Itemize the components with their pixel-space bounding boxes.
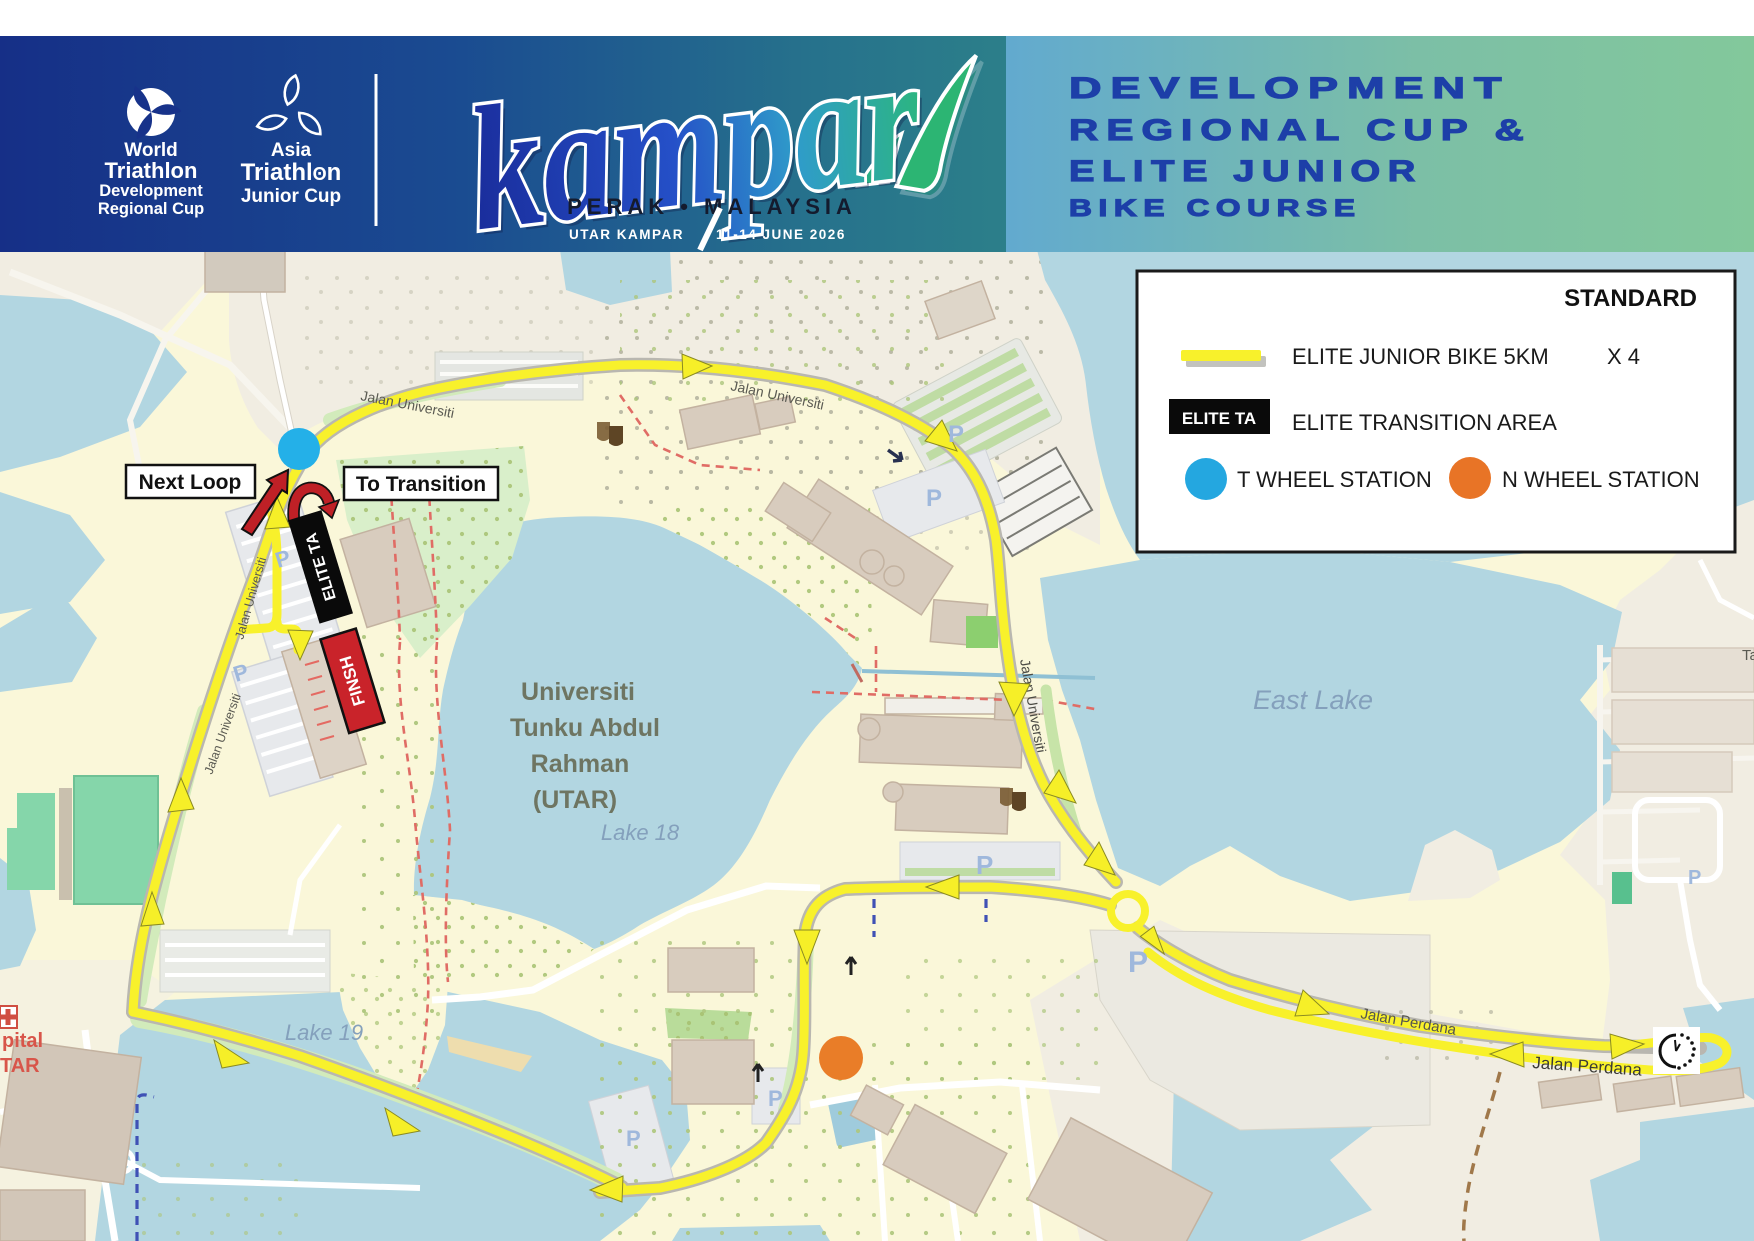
svg-text:X 4: X 4 (1607, 344, 1640, 369)
svg-text:ELITE TA: ELITE TA (1182, 409, 1256, 428)
svg-text:REGIONAL CUP &: REGIONAL CUP & (1069, 113, 1532, 147)
svg-text:ELITE JUNIOR: ELITE JUNIOR (1069, 155, 1423, 188)
svg-text:pital: pital (2, 1030, 43, 1052)
svg-text:N WHEEL STATION: N WHEEL STATION (1502, 467, 1700, 492)
svg-text:Asia: Asia (271, 140, 312, 161)
svg-text:Ta: Ta (1742, 647, 1754, 664)
svg-text:Tunku Abdul: Tunku Abdul (510, 714, 660, 742)
svg-text:UTAR KAMPAR: UTAR KAMPAR (569, 227, 684, 242)
svg-text:ELITE TRANSITION AREA: ELITE TRANSITION AREA (1292, 410, 1557, 435)
svg-text:11-14 JUNE 2026: 11-14 JUNE 2026 (716, 227, 846, 242)
svg-text:P: P (948, 421, 964, 448)
svg-text:P: P (626, 1126, 641, 1151)
svg-text:PERAK • MALAYSIA: PERAK • MALAYSIA (567, 194, 857, 219)
svg-text:Lake 19: Lake 19 (285, 1020, 363, 1045)
svg-text:BIKE COURSE: BIKE COURSE (1069, 195, 1362, 221)
svg-text:(UTAR): (UTAR) (533, 786, 617, 814)
svg-text:ELITE JUNIOR BIKE 5KM: ELITE JUNIOR BIKE 5KM (1292, 344, 1549, 369)
svg-text:Development: Development (99, 182, 203, 200)
svg-text:Rahman: Rahman (531, 750, 630, 778)
svg-text:P: P (926, 485, 942, 512)
svg-text:Next Loop: Next Loop (139, 471, 242, 494)
svg-text:P: P (768, 1086, 783, 1111)
svg-text:Triathlʘn: Triathlʘn (241, 159, 342, 186)
svg-text:TAR: TAR (0, 1055, 40, 1077)
svg-text:East Lake: East Lake (1253, 685, 1373, 715)
svg-text:STANDARD: STANDARD (1564, 285, 1697, 312)
svg-text:Universiti: Universiti (521, 678, 635, 706)
svg-text:P: P (976, 850, 993, 880)
svg-text:Regional Cup: Regional Cup (98, 200, 204, 218)
svg-text:Lake 18: Lake 18 (601, 820, 680, 845)
svg-text:Triathlon: Triathlon (105, 158, 198, 183)
svg-text:DEVELOPMENT: DEVELOPMENT (1069, 71, 1510, 105)
svg-text:Junior Cup: Junior Cup (241, 186, 341, 207)
svg-text:P: P (1128, 946, 1148, 979)
svg-text:To Transition: To Transition (356, 473, 486, 496)
svg-text:T WHEEL STATION: T WHEEL STATION (1237, 467, 1432, 492)
svg-text:P: P (1688, 867, 1701, 889)
